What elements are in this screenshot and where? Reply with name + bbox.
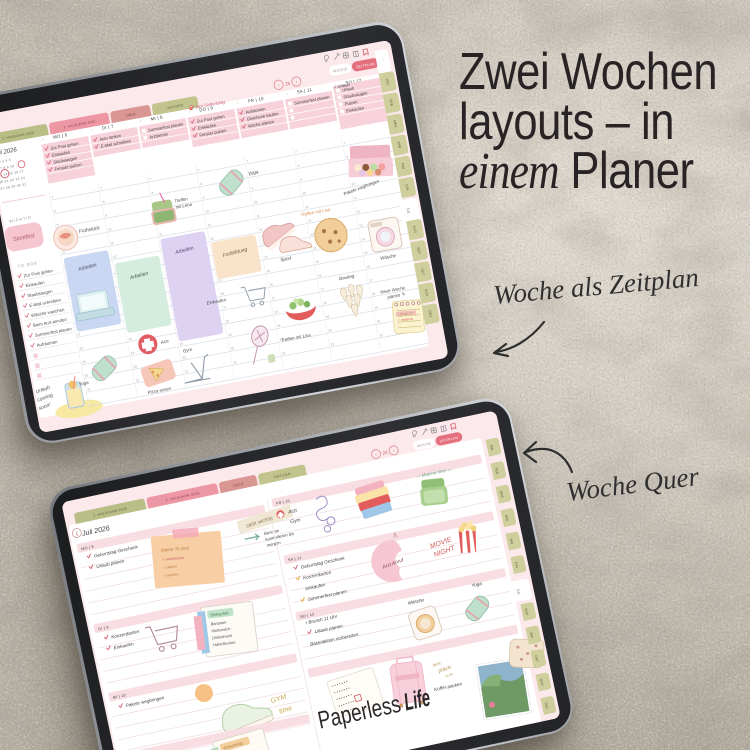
svg-text:Life: Life — [402, 685, 433, 717]
